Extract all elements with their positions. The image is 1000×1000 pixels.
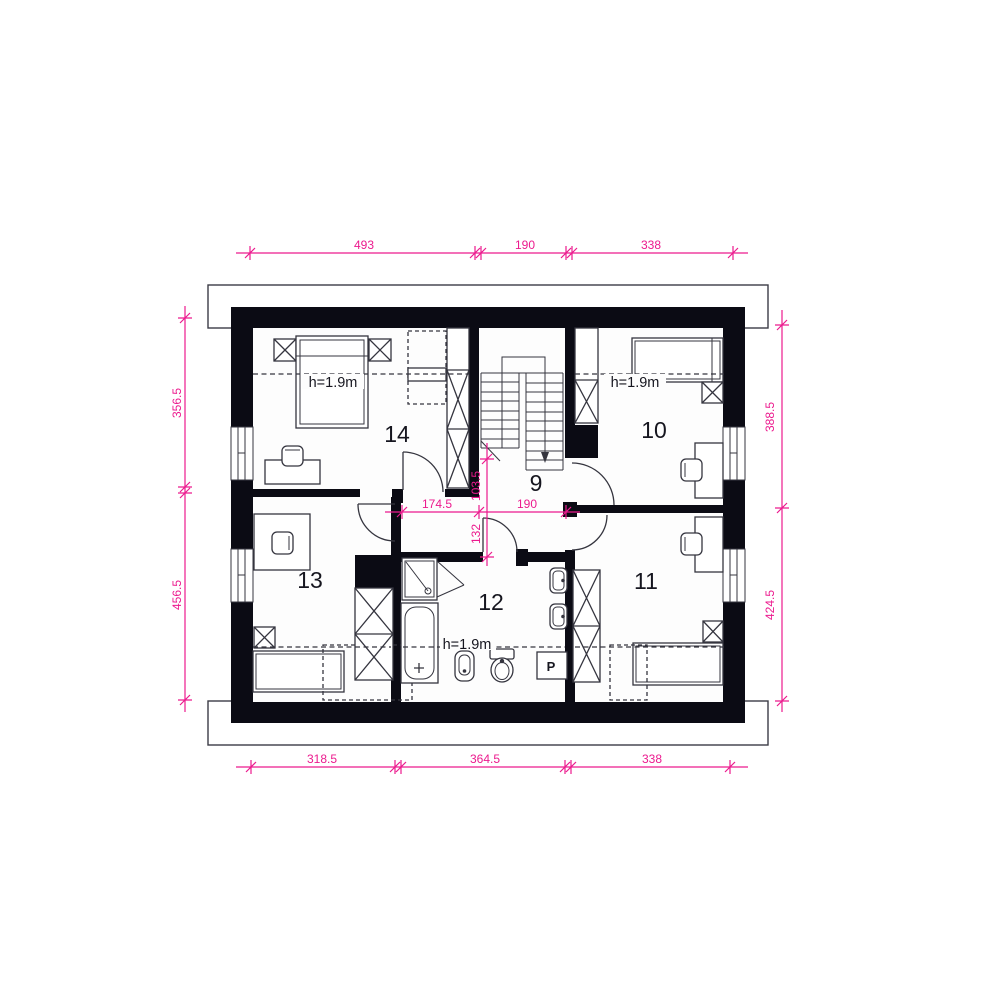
dim-hall-right: 190 <box>517 497 537 511</box>
nightstand <box>702 382 723 403</box>
sink <box>550 568 567 593</box>
dimension-bottom: 318.5 364.5 338 <box>236 752 748 774</box>
washer-label: P <box>547 659 556 674</box>
washing-machine: P <box>537 652 567 679</box>
wardrobe <box>573 570 600 682</box>
room14-label: 14 <box>384 421 410 447</box>
chair <box>272 532 293 554</box>
chair <box>282 446 303 466</box>
room11-label: 11 <box>634 568 658 594</box>
dim-passage: 132 <box>469 524 483 544</box>
dim-bottom-1: 318.5 <box>307 752 337 766</box>
window-left-1 <box>231 427 253 480</box>
nightstand <box>369 339 391 361</box>
room9-label: 9 <box>530 470 543 496</box>
sink <box>550 604 567 629</box>
wardrobe <box>447 328 469 488</box>
bed-single <box>253 651 344 692</box>
nightstand <box>274 339 296 361</box>
dimension-left: 356.5 456.5 <box>170 306 192 712</box>
dimension-right: 388.5 424.5 <box>763 310 789 712</box>
dim-bottom-2: 364.5 <box>470 752 500 766</box>
wardrobe <box>355 588 393 680</box>
dim-top-1: 493 <box>354 238 374 252</box>
dim-top-2: 190 <box>515 238 535 252</box>
dim-right-2: 424.5 <box>763 590 777 620</box>
nightstand <box>254 627 275 648</box>
chair <box>681 533 702 555</box>
chair <box>681 459 702 481</box>
height-label-room10: h=1.9m <box>611 375 660 391</box>
room13-label: 13 <box>297 567 323 593</box>
wardrobe <box>575 328 598 423</box>
dim-hall-depth: 103.5 <box>469 471 483 501</box>
height-label-room12: h=1.9m <box>443 637 492 653</box>
bidet <box>455 651 474 681</box>
toilet <box>490 649 514 682</box>
nightstand <box>703 621 723 642</box>
floor-plan-page: P 14 10 9 13 12 11 h=1.9m h=1.9m h=1.9m <box>0 0 1000 1000</box>
window-left-2 <box>231 549 253 602</box>
dim-left-1: 356.5 <box>170 388 184 418</box>
dim-top-3: 338 <box>641 238 661 252</box>
dim-left-2: 456.5 <box>170 580 184 610</box>
dimension-top: 493 190 338 <box>236 238 748 260</box>
room10-label: 10 <box>641 417 667 443</box>
dim-hall-left: 174.5 <box>422 497 452 511</box>
room12-label: 12 <box>478 589 504 615</box>
window-right-1 <box>723 427 745 480</box>
height-label-room14: h=1.9m <box>309 375 358 391</box>
bathtub <box>401 603 438 683</box>
dim-right-1: 388.5 <box>763 402 777 432</box>
dim-bottom-3: 338 <box>642 752 662 766</box>
window-right-2 <box>723 549 745 602</box>
floor-plan-drawing: P 14 10 9 13 12 11 h=1.9m h=1.9m h=1.9m <box>0 0 1000 1000</box>
